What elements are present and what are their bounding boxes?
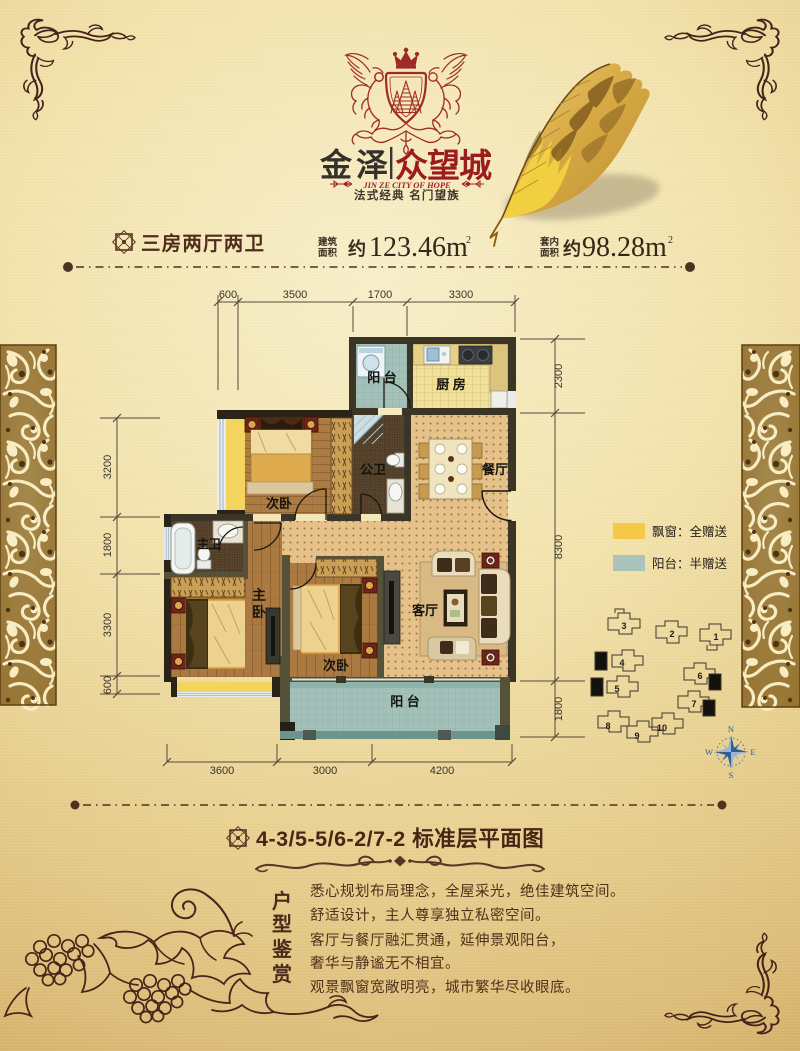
svg-text:餐厅: 餐厅 bbox=[481, 462, 508, 477]
svg-text:次卧: 次卧 bbox=[323, 658, 349, 673]
svg-text:众望城: 众望城 bbox=[395, 147, 492, 184]
svg-text:E: E bbox=[750, 747, 755, 757]
svg-text:金泽: 金泽 bbox=[319, 147, 392, 183]
svg-text:1800: 1800 bbox=[102, 533, 114, 557]
svg-text:S: S bbox=[729, 770, 734, 780]
svg-text:建筑: 建筑 bbox=[317, 236, 338, 248]
svg-text:次卧: 次卧 bbox=[266, 496, 292, 511]
svg-text:N: N bbox=[728, 724, 734, 734]
svg-text:主卫: 主卫 bbox=[197, 536, 221, 551]
svg-text:3000: 3000 bbox=[313, 765, 337, 777]
svg-text:600: 600 bbox=[102, 676, 114, 694]
svg-text:阳 台: 阳 台 bbox=[367, 370, 397, 385]
svg-text:8300: 8300 bbox=[553, 535, 565, 559]
svg-text:约: 约 bbox=[348, 238, 366, 259]
svg-text:厨 房: 厨 房 bbox=[436, 377, 466, 392]
svg-text:悉心规划布局理念，全屋采光，绝佳建筑空间。: 悉心规划布局理念，全屋采光，绝佳建筑空间。 bbox=[310, 882, 625, 900]
svg-text:JIN ZE CITY OF HOPE: JIN ZE CITY OF HOPE bbox=[362, 180, 451, 190]
svg-text:户: 户 bbox=[272, 889, 292, 913]
svg-text:98.28m: 98.28m bbox=[582, 232, 667, 263]
svg-text:3300: 3300 bbox=[449, 289, 473, 301]
svg-text:3500: 3500 bbox=[283, 289, 307, 301]
svg-text:8: 8 bbox=[605, 721, 610, 731]
svg-text:9: 9 bbox=[634, 731, 639, 741]
svg-text:公卫: 公卫 bbox=[360, 462, 386, 477]
svg-text:奢华与静谧无不相宜。: 奢华与静谧无不相宜。 bbox=[310, 955, 460, 972]
svg-text:1: 1 bbox=[713, 632, 718, 642]
svg-text:3200: 3200 bbox=[102, 455, 114, 479]
svg-text:阳台：半赠送: 阳台：半赠送 bbox=[652, 556, 728, 571]
svg-text:2: 2 bbox=[466, 235, 471, 246]
svg-text:面积: 面积 bbox=[540, 247, 560, 259]
svg-text:舒适设计，主人尊享独立私密空间。: 舒适设计，主人尊享独立私密空间。 bbox=[310, 907, 550, 924]
svg-text:10: 10 bbox=[657, 723, 667, 733]
svg-text:4200: 4200 bbox=[430, 765, 454, 777]
svg-text:约: 约 bbox=[563, 238, 581, 259]
svg-text:3600: 3600 bbox=[210, 765, 234, 777]
svg-text:阳 台: 阳 台 bbox=[390, 694, 420, 709]
svg-text:型: 型 bbox=[272, 913, 292, 936]
svg-text:3300: 3300 bbox=[102, 613, 114, 637]
svg-text:客厅与餐厅融汇贯通，延伸景观阳台，: 客厅与餐厅融汇贯通，延伸景观阳台， bbox=[310, 932, 565, 949]
svg-text:2: 2 bbox=[668, 235, 673, 246]
svg-text:飘窗：全赠送: 飘窗：全赠送 bbox=[652, 524, 728, 539]
svg-text:套内: 套内 bbox=[539, 236, 559, 248]
svg-text:123.46m: 123.46m bbox=[369, 232, 468, 263]
svg-text:2: 2 bbox=[669, 629, 674, 639]
svg-text:W: W bbox=[705, 747, 713, 757]
svg-text:4-3/5-5/6-2/7-2 标准层平面图: 4-3/5-5/6-2/7-2 标准层平面图 bbox=[256, 826, 544, 851]
svg-text:600: 600 bbox=[219, 289, 237, 301]
svg-text:3: 3 bbox=[621, 621, 626, 631]
svg-text:2300: 2300 bbox=[553, 364, 565, 388]
svg-text:1700: 1700 bbox=[368, 289, 392, 301]
svg-text:7: 7 bbox=[691, 699, 696, 709]
svg-text:主: 主 bbox=[252, 587, 266, 603]
svg-text:赏: 赏 bbox=[272, 962, 292, 986]
svg-text:三房两厅两卫: 三房两厅两卫 bbox=[141, 232, 265, 255]
svg-text:鉴: 鉴 bbox=[271, 938, 293, 961]
svg-text:1800: 1800 bbox=[553, 697, 565, 721]
svg-text:客厅: 客厅 bbox=[412, 603, 438, 618]
svg-text:观景飘窗宽敞明亮，城市繁华尽收眼底。: 观景飘窗宽敞明亮，城市繁华尽收眼底。 bbox=[310, 978, 580, 996]
svg-text:面积: 面积 bbox=[318, 247, 338, 259]
svg-text:6: 6 bbox=[697, 671, 702, 681]
svg-text:法式经典 名门望族: 法式经典 名门望族 bbox=[354, 188, 460, 202]
svg-text:卧: 卧 bbox=[252, 604, 266, 620]
svg-text:4: 4 bbox=[619, 658, 624, 668]
svg-text:5: 5 bbox=[614, 684, 619, 694]
